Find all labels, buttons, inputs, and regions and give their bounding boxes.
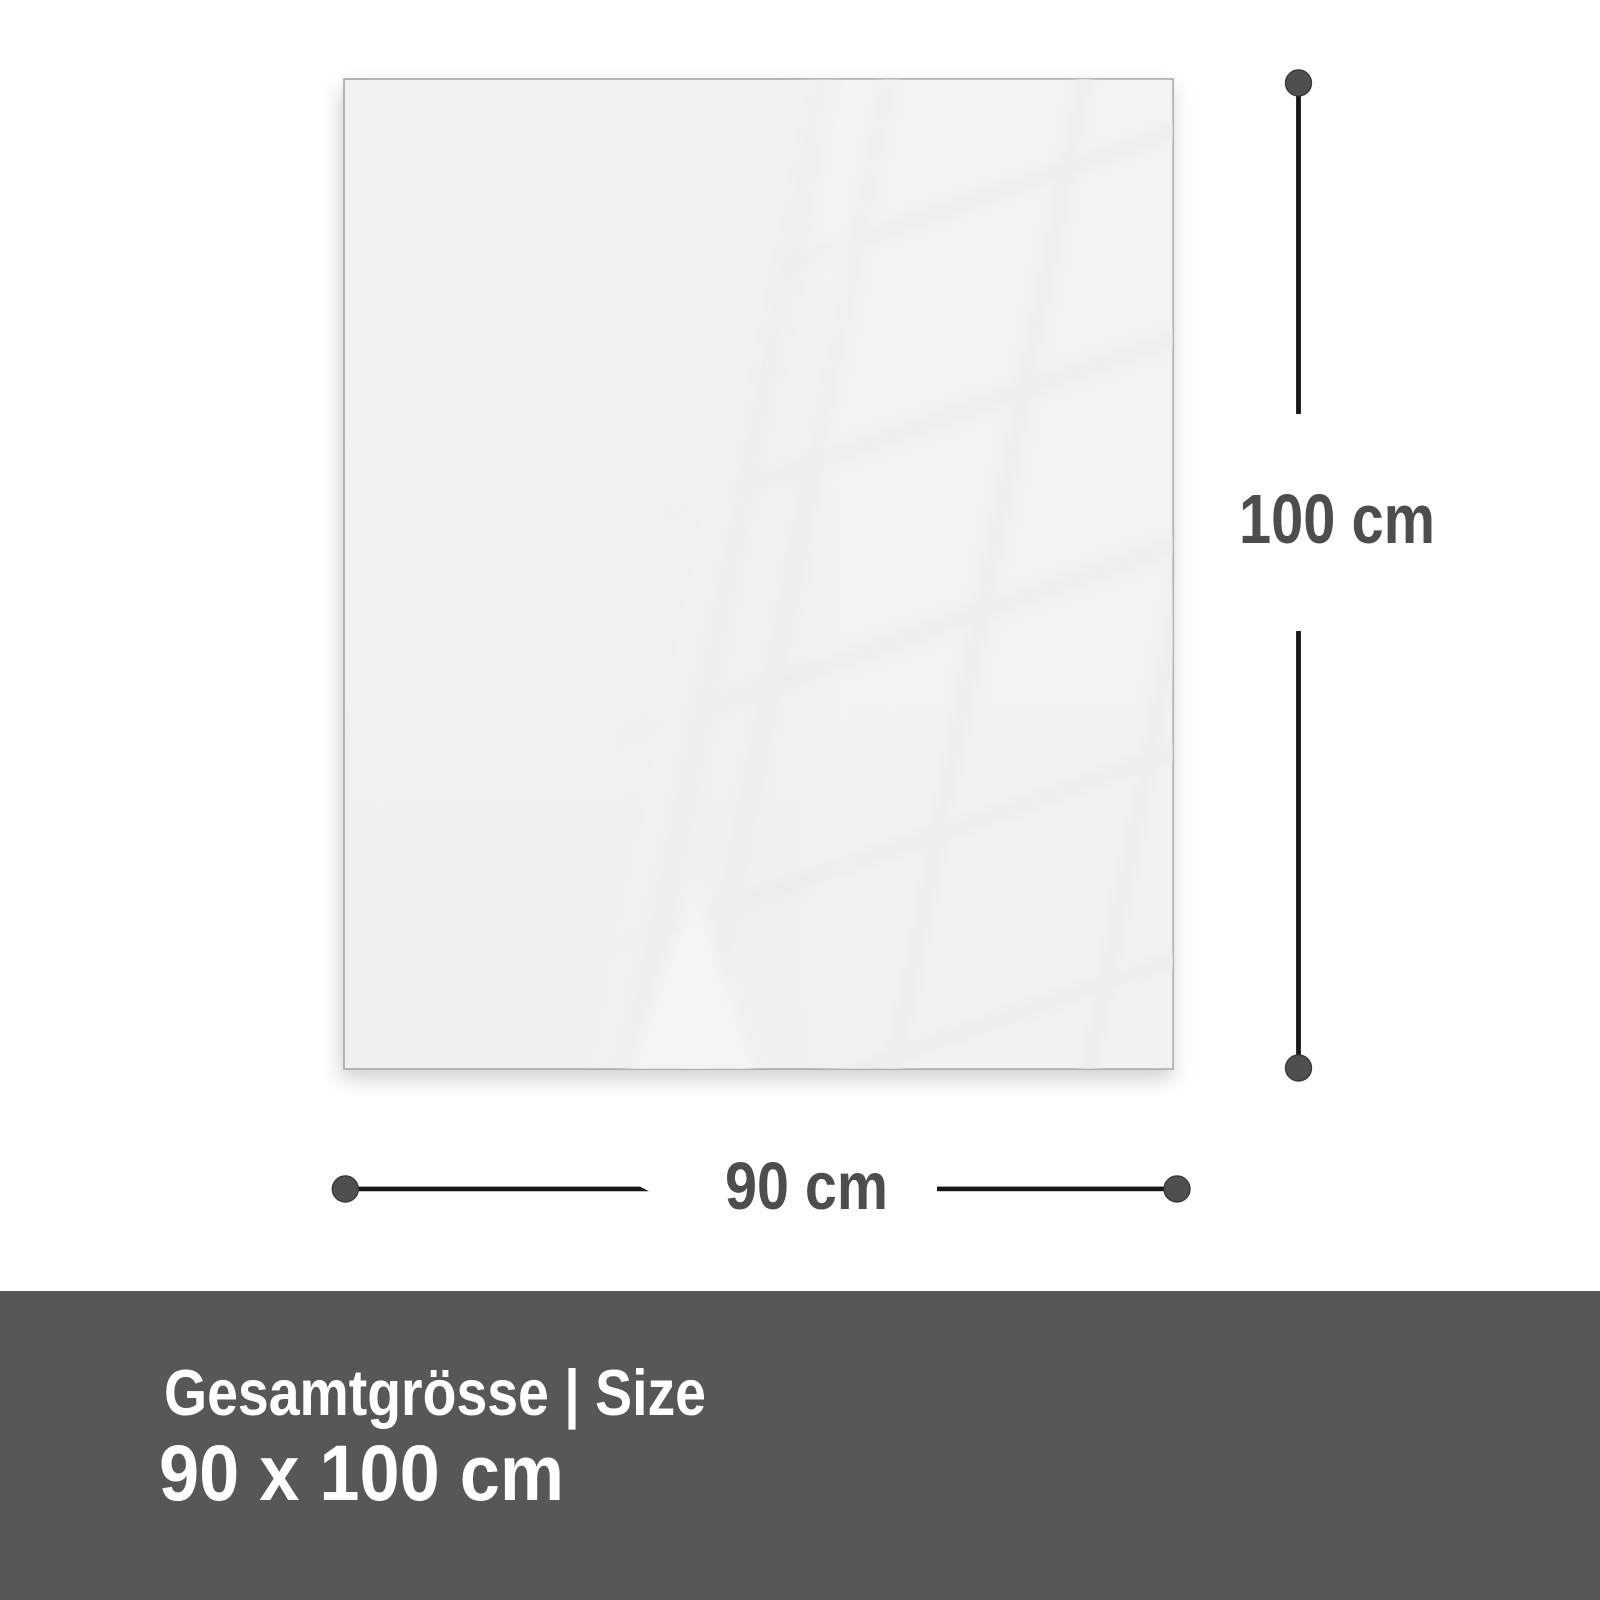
svg-text:90 cm: 90 cm [725, 1149, 888, 1224]
svg-text:90 x 100 cm: 90 x 100 cm [159, 1428, 564, 1517]
svg-text:Gesamtgrösse | Size: Gesamtgrösse | Size [164, 1356, 706, 1430]
svg-text:100 cm: 100 cm [1239, 480, 1435, 558]
